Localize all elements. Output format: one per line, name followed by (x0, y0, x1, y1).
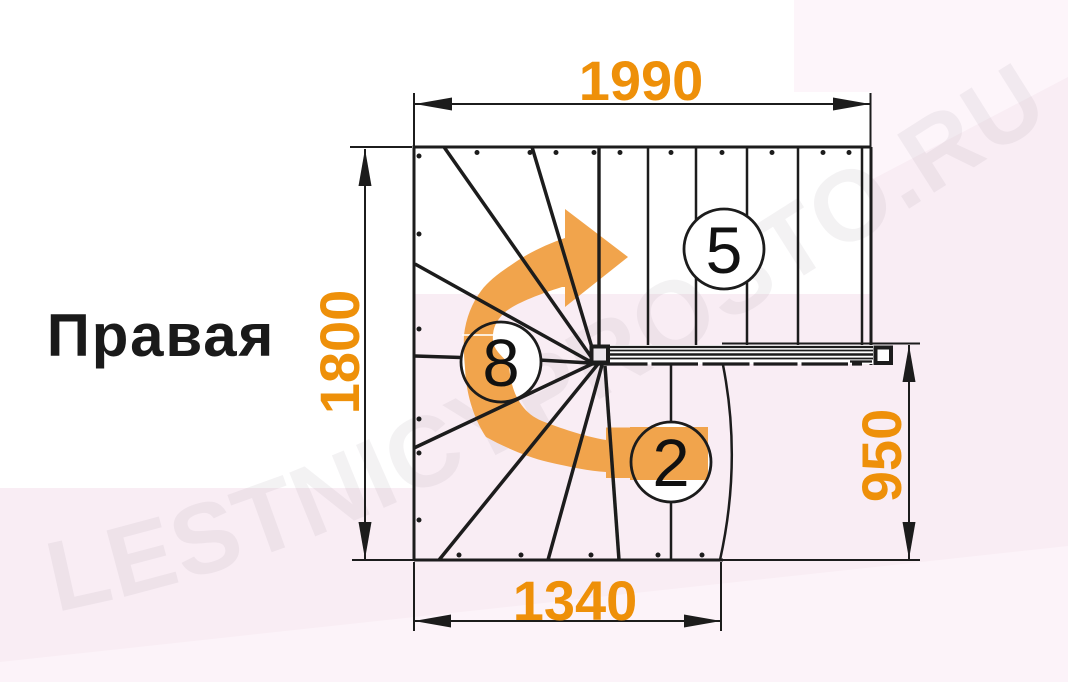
svg-text:Правая: Правая (47, 302, 275, 369)
svg-text:950: 950 (850, 409, 913, 502)
svg-text:1990: 1990 (579, 49, 704, 112)
svg-text:2: 2 (652, 426, 689, 501)
svg-text:8: 8 (482, 326, 519, 401)
svg-text:1340: 1340 (513, 569, 638, 632)
svg-text:1800: 1800 (308, 290, 371, 415)
svg-text:5: 5 (706, 213, 743, 287)
